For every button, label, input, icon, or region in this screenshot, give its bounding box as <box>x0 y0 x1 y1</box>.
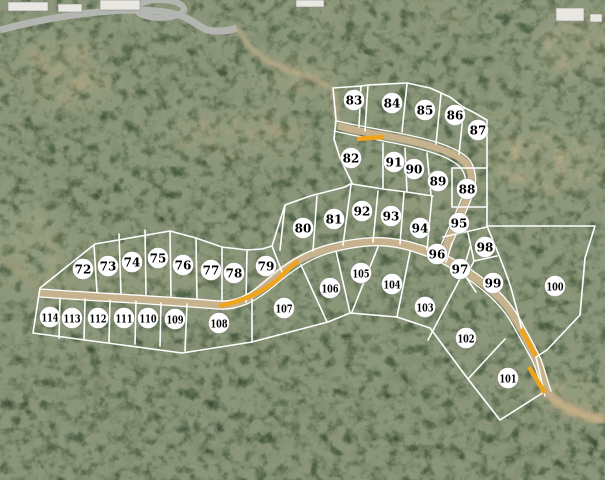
lot-marker-90[interactable]: 90 <box>404 159 425 180</box>
lot-marker-110[interactable]: 110 <box>138 308 159 329</box>
lot-marker-112[interactable]: 112 <box>88 308 109 329</box>
lot-marker-106[interactable]: 106 <box>320 278 341 299</box>
lot-number-label: 72 <box>75 262 92 276</box>
lot-marker-102[interactable]: 102 <box>456 328 477 349</box>
lot-number-label: 113 <box>64 312 81 325</box>
lot-number-label: 85 <box>417 103 434 117</box>
lot-marker-84[interactable]: 84 <box>382 93 403 114</box>
lot-marker-82[interactable]: 82 <box>341 148 362 169</box>
lot-marker-98[interactable]: 98 <box>475 237 496 258</box>
lot-number-label: 90 <box>406 162 423 176</box>
lot-marker-86[interactable]: 86 <box>445 105 466 126</box>
lot-marker-81[interactable]: 81 <box>324 209 345 230</box>
lot-number-label: 79 <box>258 259 275 273</box>
lot-number-label: 108 <box>211 317 228 330</box>
lot-number-label: 76 <box>175 258 192 272</box>
lot-marker-85[interactable]: 85 <box>415 100 436 121</box>
lot-marker-101[interactable]: 101 <box>498 368 519 389</box>
lot-number-label: 94 <box>412 221 429 235</box>
lot-marker-103[interactable]: 103 <box>415 297 436 318</box>
lot-number-label: 74 <box>124 255 141 269</box>
lot-number-label: 99 <box>485 276 502 290</box>
lot-number-label: 106 <box>322 282 339 295</box>
lot-number-label: 111 <box>116 312 133 325</box>
lot-number-label: 83 <box>346 93 363 107</box>
lot-number-label: 82 <box>343 151 360 165</box>
lot-number-label: 107 <box>276 302 293 315</box>
lot-marker-109[interactable]: 109 <box>165 309 186 330</box>
lot-marker-104[interactable]: 104 <box>382 274 403 295</box>
satellite-imagery <box>0 0 605 480</box>
lot-number-label: 88 <box>459 182 476 196</box>
lot-marker-114[interactable]: 114 <box>40 307 61 328</box>
lot-number-label: 96 <box>429 247 446 261</box>
lot-marker-79[interactable]: 79 <box>256 256 277 277</box>
lot-marker-91[interactable]: 91 <box>384 152 405 173</box>
lot-number-label: 102 <box>458 332 475 345</box>
lot-marker-72[interactable]: 72 <box>73 259 94 280</box>
lot-number-label: 110 <box>140 312 157 325</box>
lot-marker-92[interactable]: 92 <box>352 201 373 222</box>
satellite-map-svg: 7273747576777879808182838485868788899091… <box>0 0 605 480</box>
plat-map: 7273747576777879808182838485868788899091… <box>0 0 605 480</box>
lot-number-label: 89 <box>430 174 447 188</box>
lot-number-label: 80 <box>295 221 312 235</box>
lot-number-label: 101 <box>500 372 517 385</box>
lot-marker-96[interactable]: 96 <box>427 244 448 265</box>
lot-number-label: 92 <box>354 204 371 218</box>
lot-marker-75[interactable]: 75 <box>148 248 169 269</box>
lot-number-label: 97 <box>452 262 469 276</box>
lot-marker-99[interactable]: 99 <box>483 273 504 294</box>
lot-marker-107[interactable]: 107 <box>274 298 295 319</box>
lot-marker-74[interactable]: 74 <box>122 252 143 273</box>
lot-marker-105[interactable]: 105 <box>351 263 372 284</box>
lot-marker-95[interactable]: 95 <box>449 213 470 234</box>
lot-marker-100[interactable]: 100 <box>545 276 566 297</box>
lot-number-label: 103 <box>417 301 434 314</box>
lot-marker-111[interactable]: 111 <box>114 308 135 329</box>
lot-number-label: 78 <box>226 266 243 280</box>
lot-number-label: 77 <box>203 263 220 277</box>
lot-marker-93[interactable]: 93 <box>381 206 402 227</box>
lot-marker-89[interactable]: 89 <box>428 171 449 192</box>
lot-number-label: 91 <box>386 155 403 169</box>
lot-marker-83[interactable]: 83 <box>344 90 365 111</box>
lot-marker-77[interactable]: 77 <box>201 260 222 281</box>
lot-marker-97[interactable]: 97 <box>450 259 471 280</box>
lot-marker-113[interactable]: 113 <box>62 308 83 329</box>
lot-number-label: 114 <box>42 311 59 324</box>
lot-number-label: 86 <box>447 108 464 122</box>
lot-number-label: 98 <box>477 240 494 254</box>
lot-number-label: 100 <box>547 280 564 293</box>
lot-marker-73[interactable]: 73 <box>98 256 119 277</box>
lot-number-label: 95 <box>451 216 468 230</box>
lot-number-label: 84 <box>384 96 401 110</box>
lot-marker-80[interactable]: 80 <box>293 218 314 239</box>
lot-number-label: 87 <box>470 123 487 137</box>
lot-number-label: 81 <box>326 212 343 226</box>
lot-number-label: 104 <box>384 278 401 291</box>
lot-marker-88[interactable]: 88 <box>457 179 478 200</box>
road-highlight-highlight-north <box>357 137 384 139</box>
lot-number-label: 93 <box>383 209 400 223</box>
lot-number-label: 109 <box>167 313 184 326</box>
lot-number-label: 112 <box>90 312 107 325</box>
lot-marker-76[interactable]: 76 <box>173 255 194 276</box>
lot-number-label: 75 <box>150 251 167 265</box>
lot-number-label: 105 <box>353 267 370 280</box>
lot-marker-94[interactable]: 94 <box>410 218 431 239</box>
lot-marker-87[interactable]: 87 <box>468 120 489 141</box>
lot-marker-78[interactable]: 78 <box>224 263 245 284</box>
lot-number-label: 73 <box>100 259 117 273</box>
lot-marker-108[interactable]: 108 <box>209 313 230 334</box>
